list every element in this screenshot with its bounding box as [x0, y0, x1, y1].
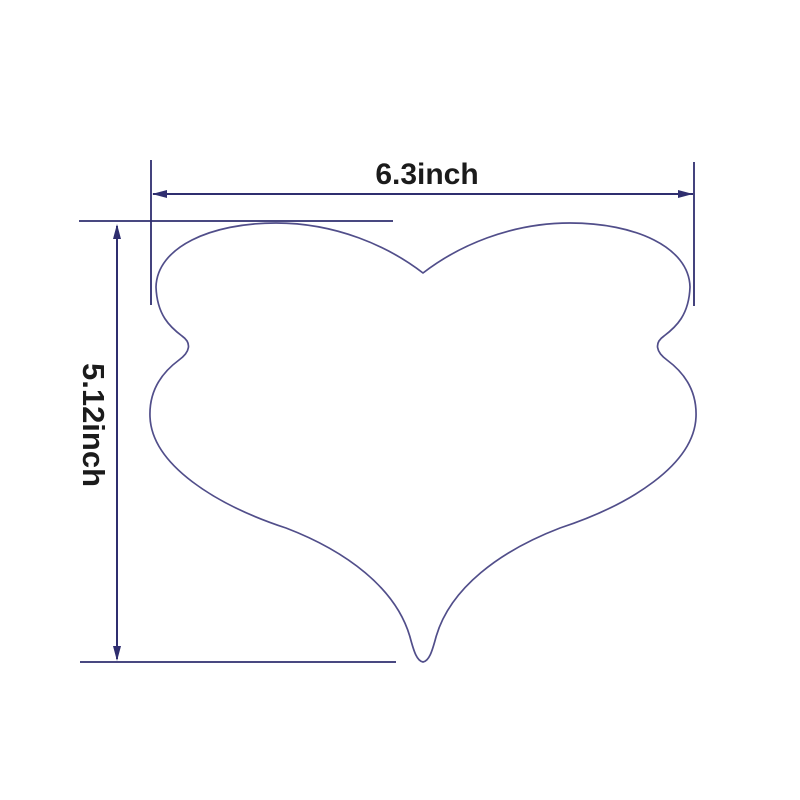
height-dimension-label: 5.12inch — [73, 345, 113, 505]
width-dimension-label: 6.3inch — [327, 158, 527, 192]
height-dimension-arrow-top-icon — [113, 224, 121, 239]
height-dimension-arrow-bottom-icon — [113, 646, 121, 661]
width-dimension-arrow-left-icon — [152, 190, 167, 198]
dimension-drawing — [0, 0, 800, 800]
diagram-canvas: 6.3inch 5.12inch — [0, 0, 800, 800]
width-dimension-arrow-right-icon — [678, 190, 693, 198]
tool-outline-shape — [150, 223, 696, 662]
